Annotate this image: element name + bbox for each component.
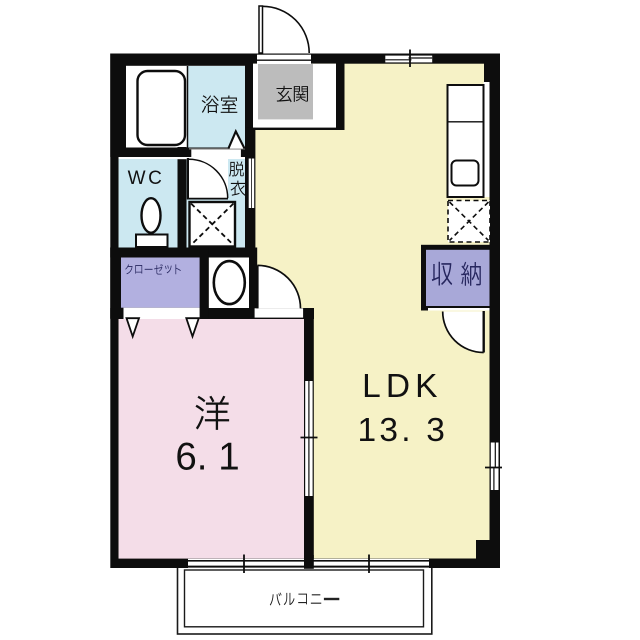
svg-text:LDK: LDK (362, 368, 442, 405)
svg-text:WC: WC (128, 168, 165, 189)
svg-text:13. 3: 13. 3 (358, 412, 449, 449)
svg-text:6. 1: 6. 1 (175, 436, 239, 479)
